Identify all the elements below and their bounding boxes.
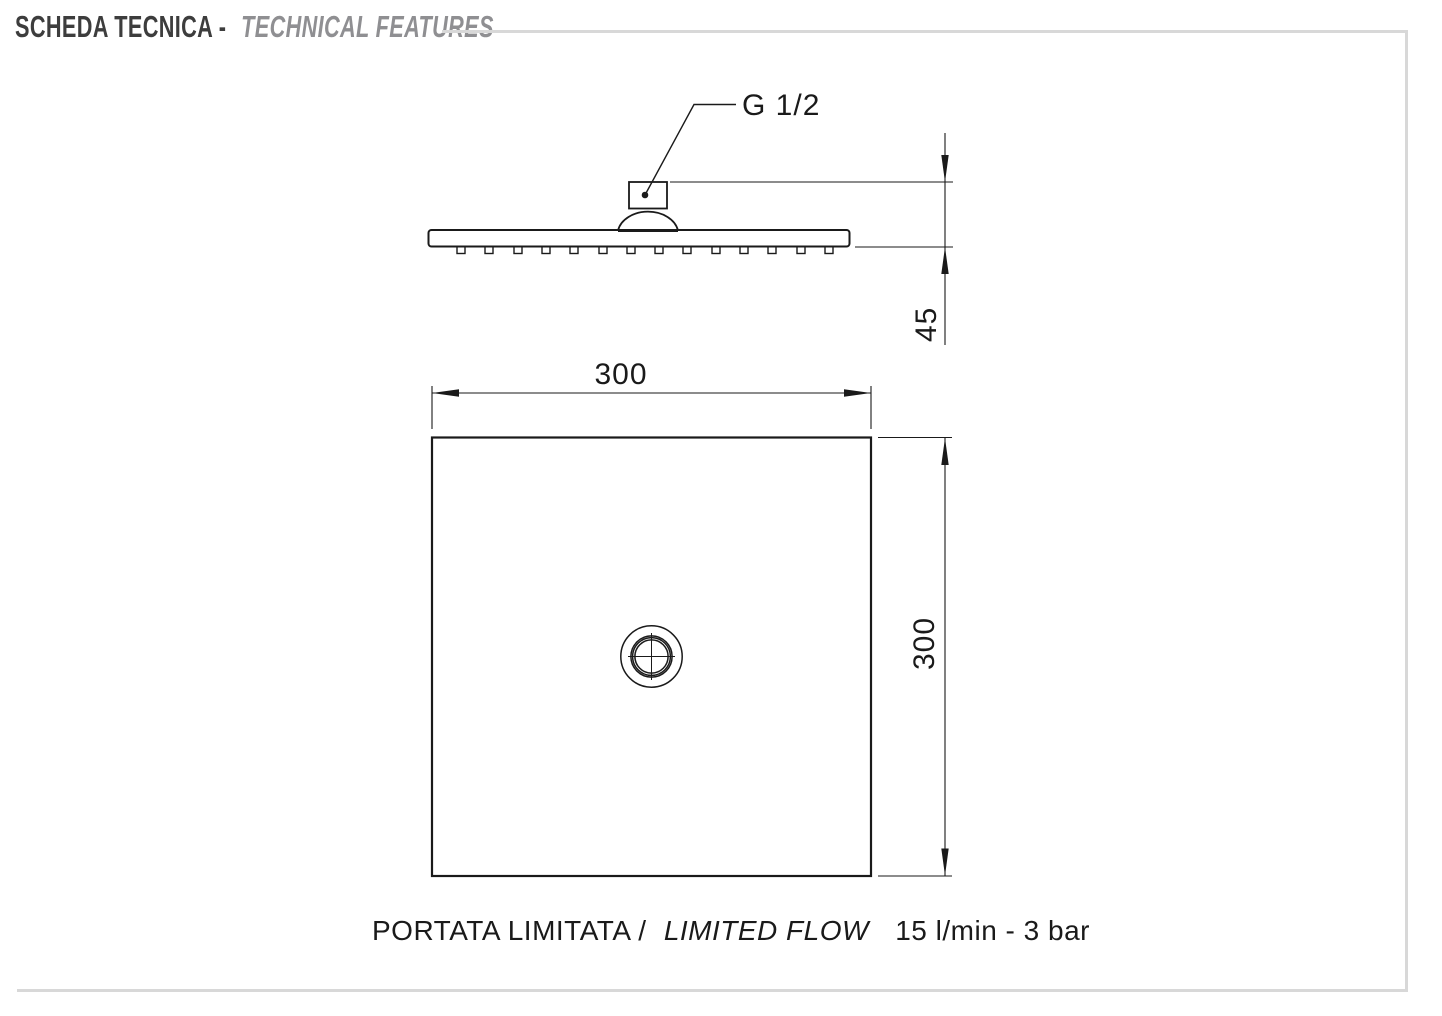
arrow-left-icon bbox=[432, 389, 459, 396]
bottom-view bbox=[432, 438, 871, 877]
arrow-right-icon bbox=[844, 389, 871, 396]
nozzles bbox=[457, 247, 833, 254]
arrow-up-icon bbox=[941, 247, 948, 274]
arrow-down-icon bbox=[941, 849, 948, 876]
technical-sheet-page: SCHEDA TECNICA - TECHNICAL FEATURES bbox=[0, 0, 1442, 1016]
flow-caption: PORTATA LIMITATA / LIMITED FLOW 15 l/min… bbox=[372, 915, 1090, 947]
flow-caption-english: LIMITED FLOW bbox=[664, 915, 869, 946]
flow-caption-italian: PORTATA LIMITATA / bbox=[372, 915, 647, 946]
dimension-width-300: 300 bbox=[432, 358, 871, 429]
dimension-depth-300: 300 bbox=[878, 438, 952, 877]
shower-plate-side bbox=[429, 230, 850, 247]
arrow-down-icon bbox=[941, 155, 948, 182]
height-value: 45 bbox=[910, 307, 943, 342]
depth-value: 300 bbox=[908, 617, 941, 670]
arrow-up-icon bbox=[941, 438, 948, 465]
flow-caption-value: 15 l/min - 3 bar bbox=[895, 915, 1090, 946]
connector-dome bbox=[618, 212, 678, 231]
side-view: G 1/2 bbox=[429, 89, 850, 254]
connection-size-label: G 1/2 bbox=[742, 89, 820, 122]
width-value: 300 bbox=[594, 358, 647, 391]
technical-drawing: G 1/2 45 bbox=[0, 0, 1442, 1016]
water-inlet bbox=[621, 626, 682, 687]
